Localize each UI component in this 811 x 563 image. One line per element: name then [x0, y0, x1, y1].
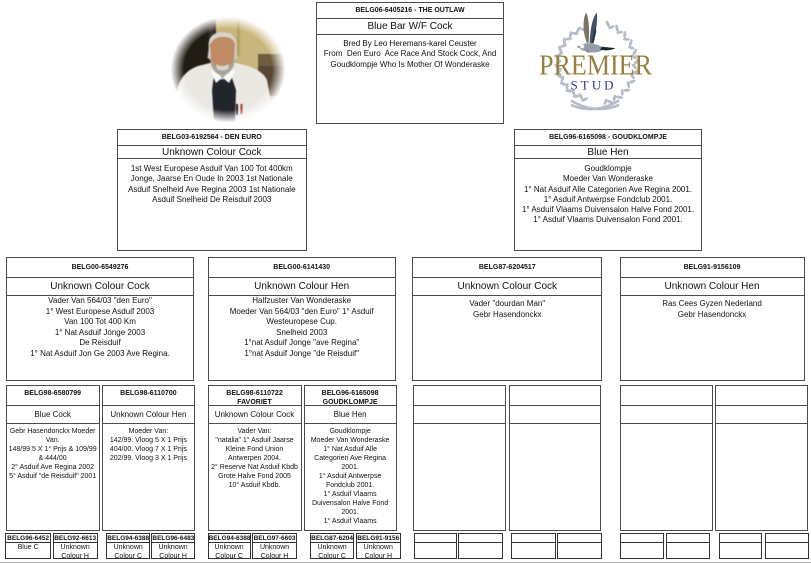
svg-text:STUD: STUD	[571, 78, 614, 93]
